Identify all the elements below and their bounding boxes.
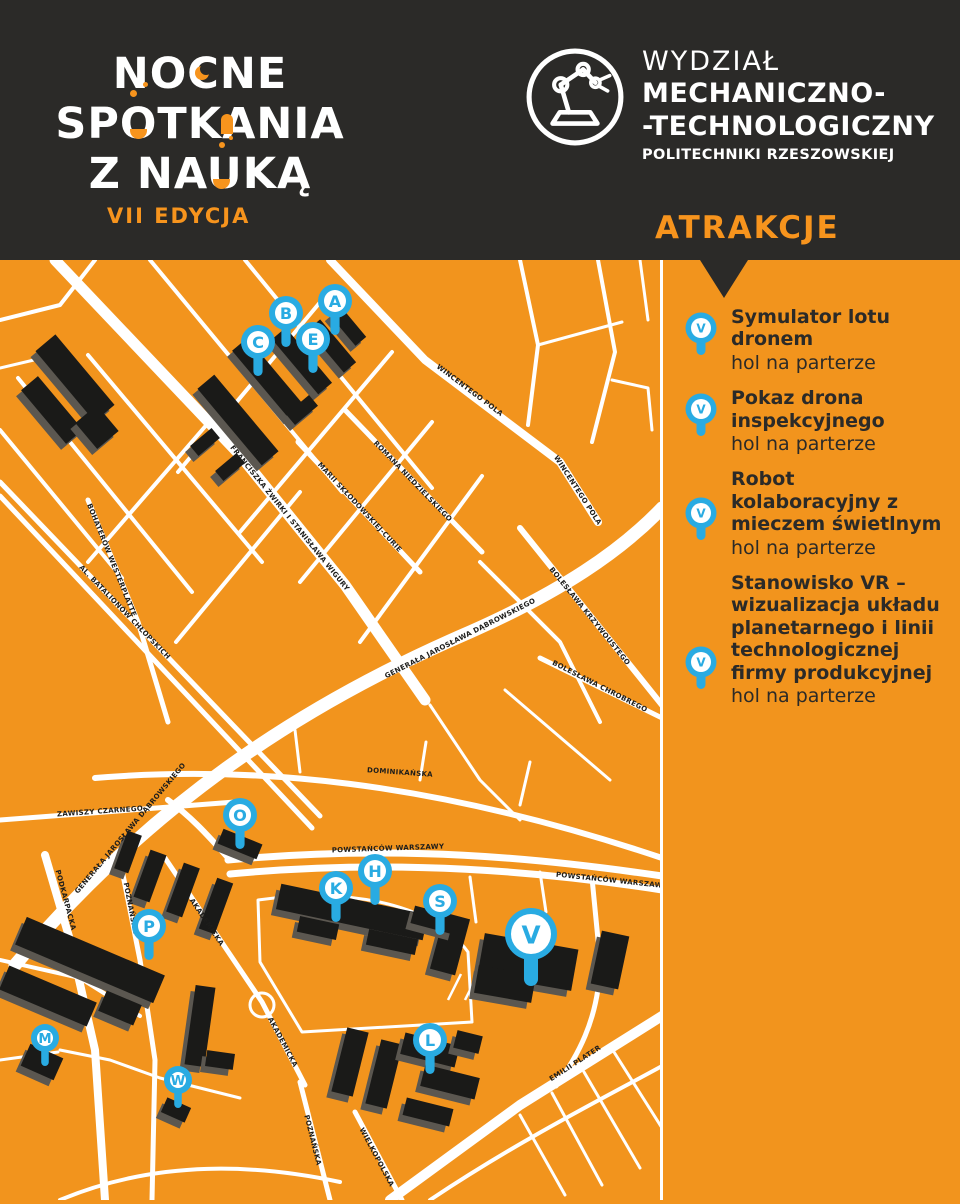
content: FRANCISZKA ŻWIRKI I STANISŁAWA WIGURYMAR… <box>0 260 960 1200</box>
header: NOCNE SPOTKANIA Z NAUKĄ VII EDYCJA <box>0 0 960 260</box>
title-line-2: SPOTKANIA <box>35 100 365 150</box>
pointer-triangle <box>700 260 748 298</box>
poster: NOCNE SPOTKANIA Z NAUKĄ VII EDYCJA <box>0 0 960 1200</box>
attraction-title: Pokaz drona inspekcyjnego <box>731 387 944 432</box>
event-title: NOCNE SPOTKANIA Z NAUKĄ VII EDYCJA <box>35 50 365 228</box>
title-line-3: Z NAUKĄ <box>35 150 365 200</box>
faculty-line-4: POLITECHNIKI RZESZOWSKIEJ <box>642 147 935 163</box>
robot-arm-icon <box>524 46 626 148</box>
attraction-title: Symulator lotu dronem <box>731 306 944 351</box>
svg-text:K: K <box>330 879 343 898</box>
attraction-location: hol na parterze <box>731 537 944 559</box>
svg-text:S: S <box>434 892 446 911</box>
door-icon <box>221 114 233 134</box>
attraction-location: hol na parterze <box>731 685 944 707</box>
svg-text:V: V <box>696 507 706 521</box>
svg-text:H: H <box>368 862 382 881</box>
edition-label: VII EDYCJA <box>35 204 365 228</box>
attraction-item: VRobot kolaboracyjny z mieczem świetlnym… <box>685 468 944 559</box>
svg-text:O: O <box>233 806 247 825</box>
svg-text:P: P <box>143 917 155 936</box>
moon-mask <box>200 63 212 75</box>
map-area: FRANCISZKA ŻWIRKI I STANISŁAWA WIGURYMAR… <box>0 260 660 1200</box>
svg-text:V: V <box>696 403 706 417</box>
location-pin-icon: V <box>683 645 719 695</box>
attraction-title: Stanowisko VR – wizualizacja układu plan… <box>731 572 944 684</box>
svg-text:M: M <box>38 1032 51 1047</box>
svg-text:W: W <box>171 1074 186 1089</box>
svg-text:B: B <box>280 304 292 323</box>
svg-text:E: E <box>307 330 318 349</box>
attractions-sidebar: VSymulator lotu dronemhol na parterzeVPo… <box>660 260 960 1200</box>
attractions-list: VSymulator lotu dronemhol na parterzeVPo… <box>685 306 944 708</box>
location-pin-icon: V <box>683 311 719 361</box>
attraction-item: VPokaz drona inspekcyjnegohol na parterz… <box>685 387 944 455</box>
faculty-line-3: -TECHNOLOGICZNY <box>642 111 935 143</box>
bubble-icon <box>143 82 148 87</box>
faculty-name: WYDZIAŁ MECHANICZNO- -TECHNOLOGICZNY POL… <box>642 46 935 163</box>
campus-map: FRANCISZKA ŻWIRKI I STANISŁAWA WIGURYMAR… <box>0 260 660 1200</box>
attraction-item: VStanowisko VR – wizualizacja układu pla… <box>685 572 944 707</box>
location-pin-icon: V <box>683 496 719 546</box>
svg-text:V: V <box>696 322 706 336</box>
svg-text:C: C <box>252 333 264 352</box>
attraction-location: hol na parterze <box>731 352 944 374</box>
svg-text:A: A <box>329 292 342 311</box>
bubble-icon <box>219 142 225 148</box>
svg-text:V: V <box>696 655 706 669</box>
svg-text:V: V <box>521 920 540 949</box>
bubble-icon <box>130 90 137 97</box>
faculty-logo: WYDZIAŁ MECHANICZNO- -TECHNOLOGICZNY POL… <box>524 46 935 163</box>
attraction-item: VSymulator lotu dronemhol na parterze <box>685 306 944 374</box>
bubble-icon <box>229 136 233 140</box>
svg-text:L: L <box>425 1031 435 1050</box>
attraction-location: hol na parterze <box>731 433 944 455</box>
attractions-heading: ATRAKCJE <box>655 210 840 246</box>
attraction-title: Robot kolaboracyjny z mieczem świetlnym <box>731 468 944 535</box>
location-pin-icon: V <box>683 392 719 442</box>
faculty-line-1: WYDZIAŁ <box>642 46 935 78</box>
faculty-line-2: MECHANICZNO- <box>642 78 935 110</box>
